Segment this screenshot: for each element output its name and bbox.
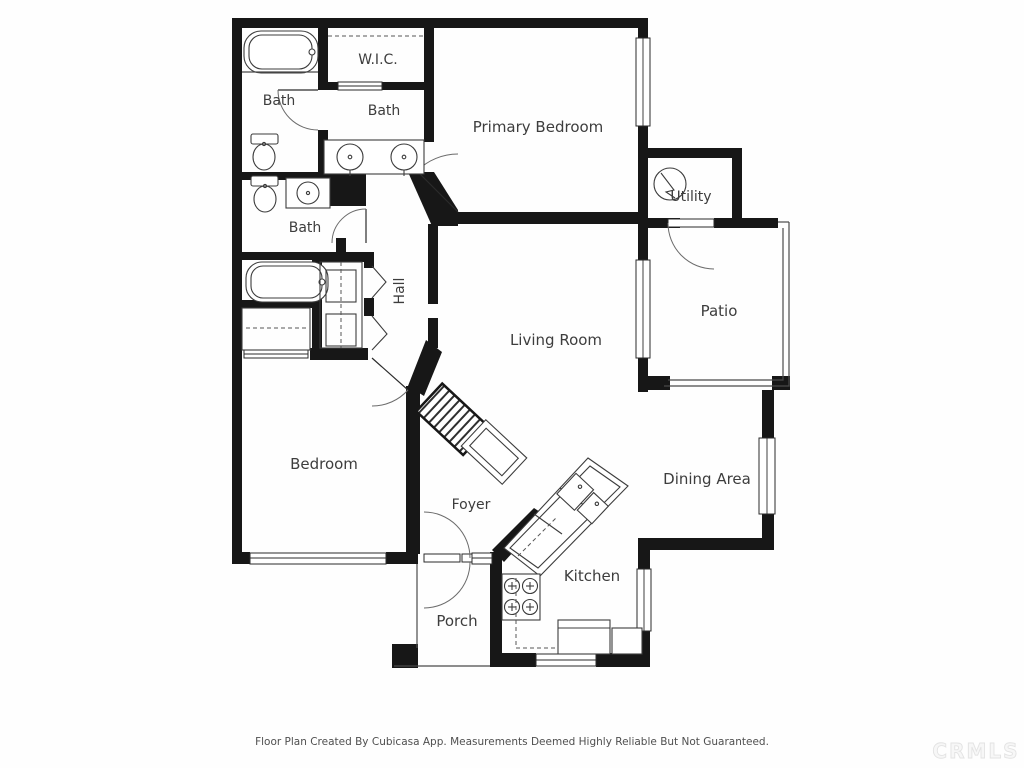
floor-plan-image: Bath W.I.C. Bath Primary Bedroom Utility… [0, 0, 1024, 768]
patio-door [668, 219, 714, 269]
sink-icon [286, 178, 330, 208]
room-label-dining-area: Dining Area [663, 470, 751, 488]
window [536, 654, 596, 666]
room-label-bath-top-left: Bath [263, 93, 296, 109]
room-label-bath-top-middle: Bath [368, 103, 401, 119]
room-label-porch: Porch [436, 612, 477, 630]
stove-icon [502, 574, 540, 620]
room-label-living-room: Living Room [510, 331, 602, 349]
room-label-foyer: Foyer [452, 497, 491, 513]
bathtub-icon [244, 31, 318, 73]
floor-plan-svg: Bath W.I.C. Bath Primary Bedroom Utility… [0, 0, 1024, 768]
bedroom-closet [242, 308, 310, 350]
room-label-utility: Utility [670, 189, 711, 205]
window [636, 260, 650, 358]
door-swing [332, 209, 366, 243]
hall-closet [320, 262, 362, 348]
room-label-wic: W.I.C. [358, 52, 398, 68]
room-label-hall: Hall [392, 278, 408, 305]
door-swing [372, 358, 408, 406]
window [637, 569, 651, 631]
counter [612, 628, 642, 654]
toilet-icon [251, 134, 278, 170]
bathtub-icon [246, 262, 328, 302]
room-label-kitchen: Kitchen [564, 567, 620, 585]
bifold-door [372, 266, 386, 298]
kitchen-counter [504, 458, 628, 576]
room-label-patio: Patio [701, 302, 738, 320]
room-label-primary-bedroom: Primary Bedroom [473, 118, 604, 136]
window [250, 553, 386, 564]
window [759, 438, 775, 514]
double-vanity [324, 140, 424, 176]
footer-disclaimer: Floor Plan Created By Cubicasa App. Meas… [255, 736, 769, 748]
crmls-watermark: CRMLS [932, 739, 1019, 763]
window [636, 38, 650, 126]
room-label-bedroom: Bedroom [290, 455, 358, 473]
sliding-door [244, 350, 308, 358]
front-door [424, 512, 472, 608]
bifold-door [372, 316, 387, 350]
refrigerator-icon [558, 620, 610, 654]
room-label-bath-middle-left: Bath [289, 220, 322, 236]
toilet-icon [251, 176, 278, 212]
window [472, 553, 492, 564]
sliding-door [338, 82, 382, 90]
